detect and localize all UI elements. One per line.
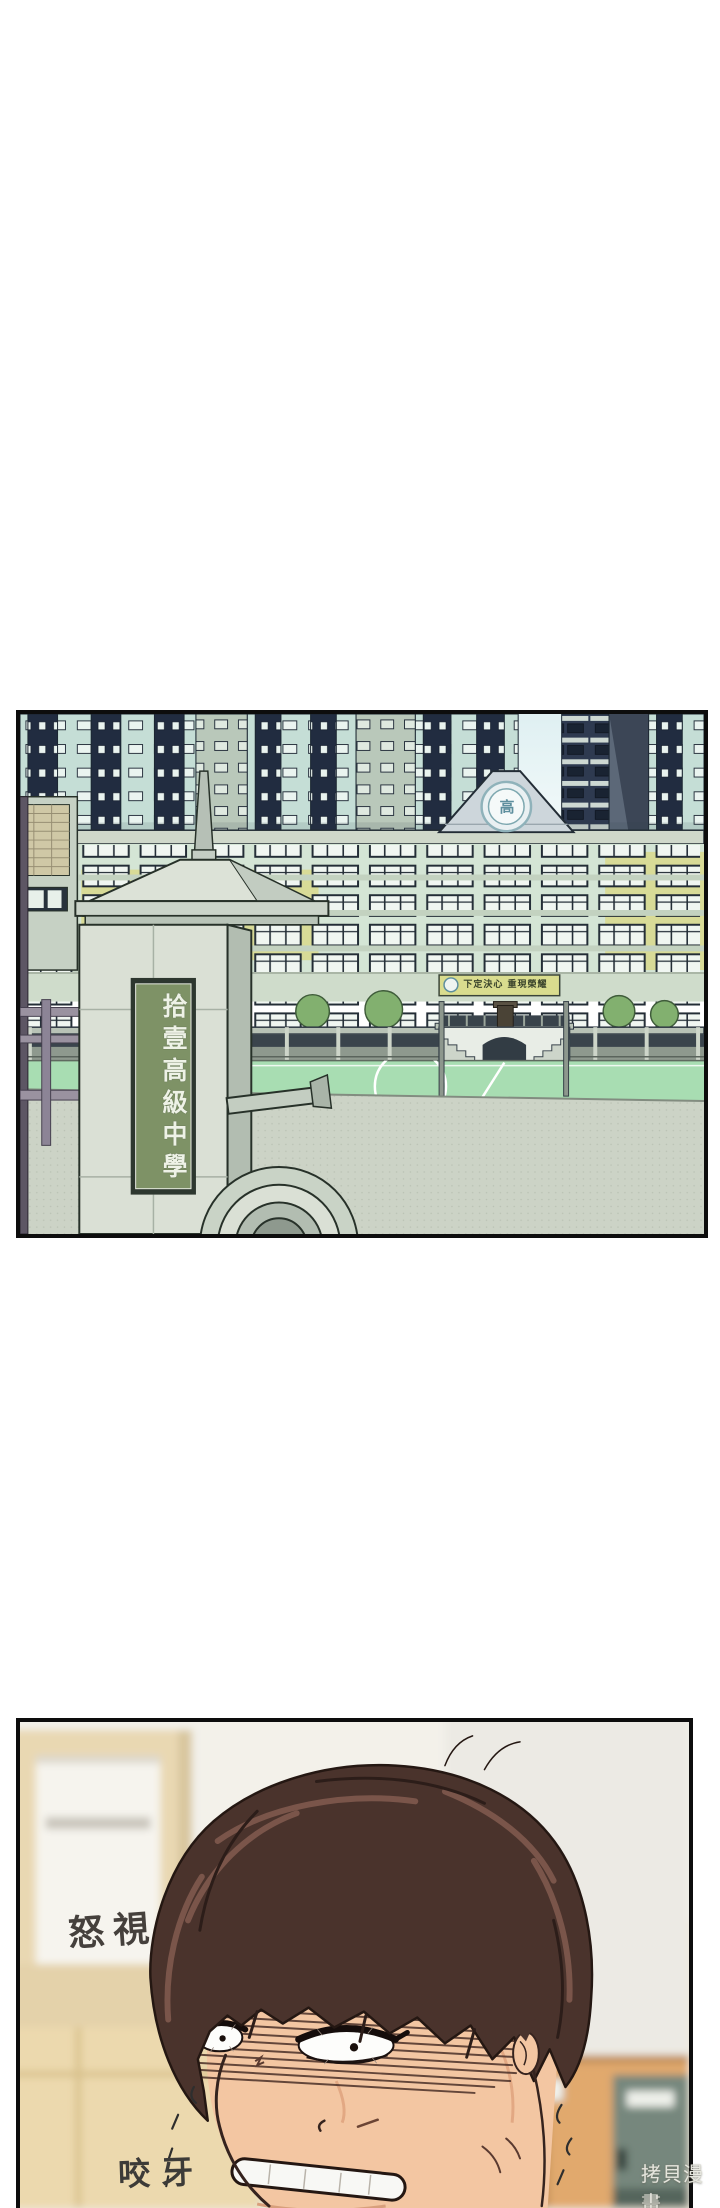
closeup-scene-art — [20, 1722, 689, 2208]
panel-angry-closeup: 怒視 咬牙 — [16, 1718, 693, 2208]
comic-page: 拾壹高級中學 下定決心 重現榮耀 高 — [0, 0, 720, 2208]
apartment-towers — [20, 714, 704, 834]
school-scene-art — [20, 714, 704, 1234]
school-roofline — [20, 830, 704, 844]
panel-school-gate: 拾壹高級中學 下定決心 重現榮耀 高 — [16, 710, 708, 1238]
